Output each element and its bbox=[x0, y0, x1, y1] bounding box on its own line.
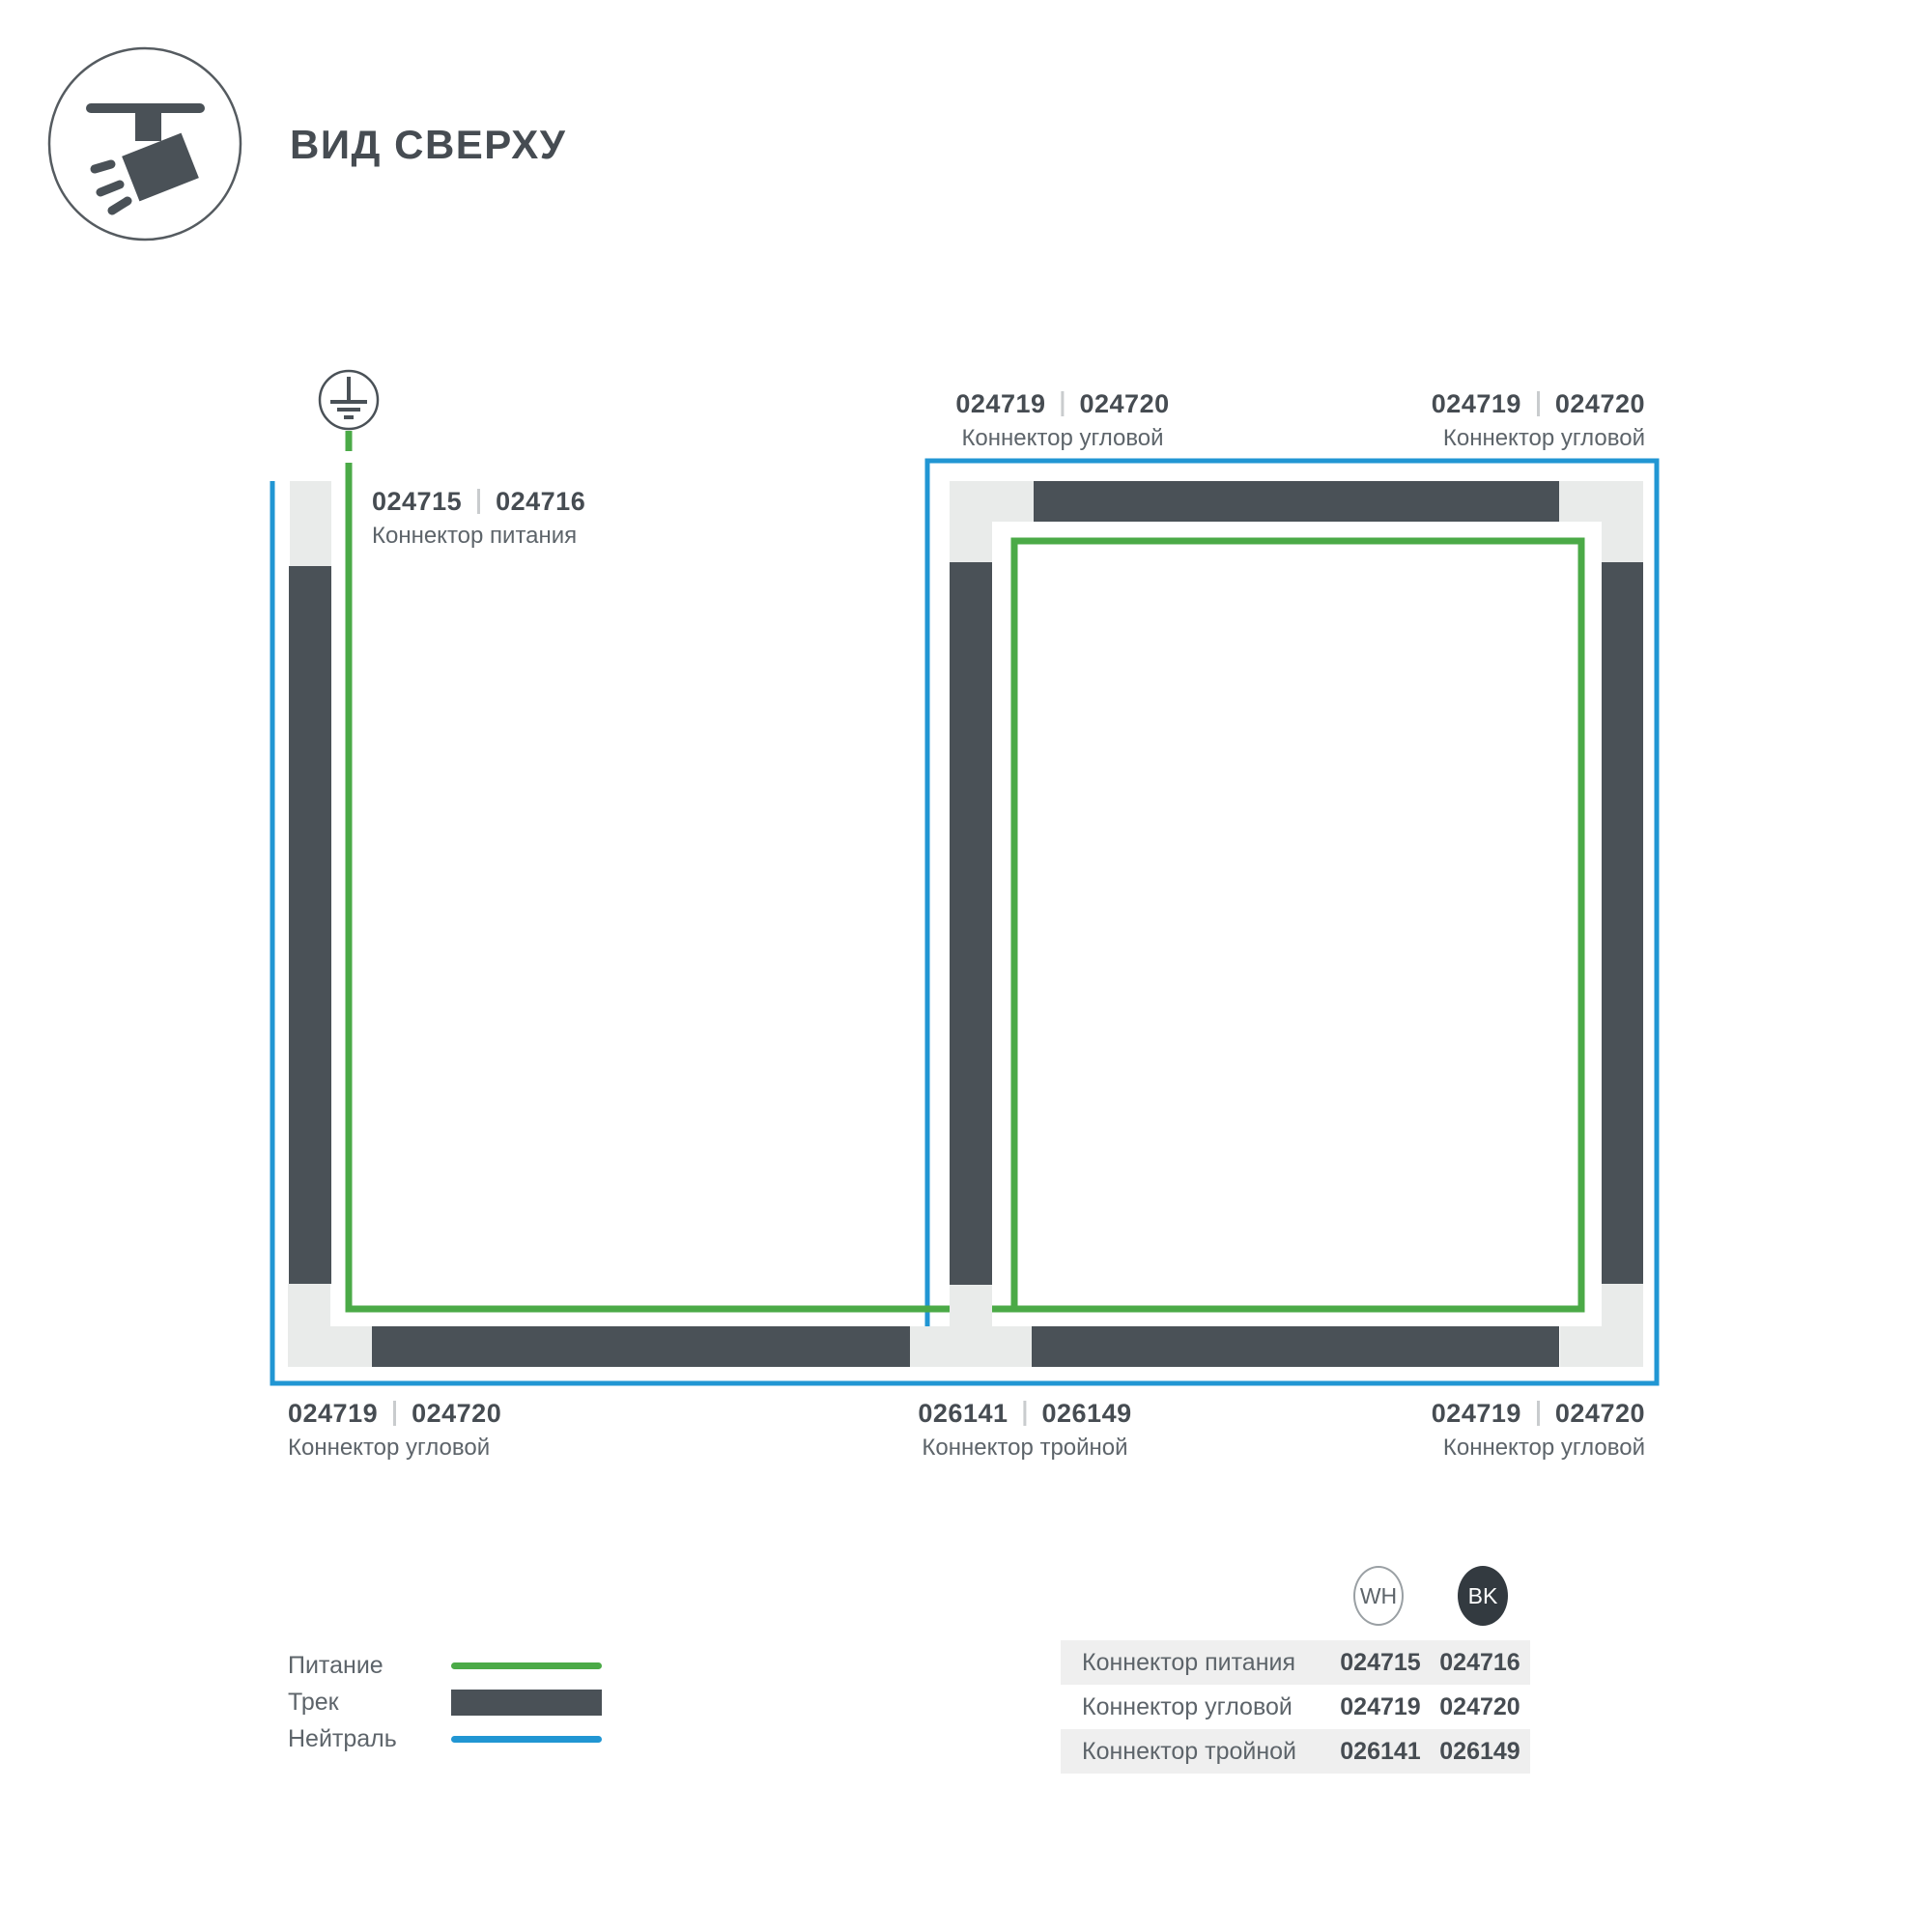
track-bottom-left bbox=[372, 1326, 910, 1367]
page: ВИД СВЕРХУ bbox=[0, 0, 1932, 1932]
legend-item-neutral: Нейтраль bbox=[288, 1720, 602, 1757]
neutral-line-swatch bbox=[451, 1736, 602, 1743]
row-code-bk: 024720 bbox=[1430, 1693, 1530, 1721]
legend-label: Трек bbox=[288, 1689, 451, 1717]
code-divider bbox=[477, 489, 480, 514]
power-connector bbox=[290, 481, 331, 566]
track-layout-diagram bbox=[0, 0, 1932, 1932]
ground-symbol bbox=[320, 371, 378, 429]
track-right-vertical bbox=[1602, 562, 1643, 1284]
legend-label: Питание bbox=[288, 1652, 451, 1680]
label-name: Коннектор угловой bbox=[955, 425, 1169, 452]
track-segments bbox=[289, 481, 1643, 1367]
corner-connector-top-mid bbox=[950, 481, 1034, 562]
label-name: Коннектор тройной bbox=[918, 1435, 1131, 1462]
corner-connector-bottom-left bbox=[288, 1284, 372, 1367]
code-divider bbox=[1537, 391, 1540, 416]
power-line-swatch bbox=[451, 1662, 602, 1669]
legend-label: Нейтраль bbox=[288, 1725, 451, 1753]
code-divider bbox=[1062, 391, 1065, 416]
row-name: Коннектор питания bbox=[1061, 1649, 1331, 1677]
label-name: Коннектор питания bbox=[372, 523, 585, 550]
table-row: Коннектор тройной 026141 026149 bbox=[1061, 1729, 1530, 1774]
product-table: WH BK Коннектор питания 024715 024716 Ко… bbox=[1061, 1565, 1530, 1774]
label-codes: 024719024720 bbox=[955, 388, 1169, 419]
row-code-wh: 026141 bbox=[1331, 1738, 1430, 1766]
row-code-wh: 024719 bbox=[1331, 1693, 1430, 1721]
label-codes: 024719024720 bbox=[1432, 1398, 1645, 1429]
corner-connector-top-right bbox=[1559, 481, 1643, 562]
label-codes: 024715024716 bbox=[372, 486, 585, 517]
table-header: WH BK bbox=[1061, 1565, 1530, 1640]
table-row: Коннектор угловой 024719 024720 bbox=[1061, 1685, 1530, 1729]
label-triple-connector: 026141026149 Коннектор тройной bbox=[918, 1398, 1131, 1462]
code-divider bbox=[393, 1401, 396, 1426]
label-codes: 024719024720 bbox=[288, 1398, 501, 1429]
label-power-connector: 024715024716 Коннектор питания bbox=[372, 486, 585, 550]
code-divider bbox=[1024, 1401, 1027, 1426]
track-middle-vertical bbox=[950, 562, 992, 1285]
track-bottom-right bbox=[1032, 1326, 1559, 1367]
row-name: Коннектор угловой bbox=[1061, 1693, 1331, 1721]
label-name: Коннектор угловой bbox=[288, 1435, 501, 1462]
legend: Питание Трек Нейтраль bbox=[288, 1647, 602, 1757]
table-row: Коннектор питания 024715 024716 bbox=[1061, 1640, 1530, 1685]
label-corner-bottom-left: 024719024720 Коннектор угловой bbox=[288, 1398, 501, 1462]
bk-color-badge: BK bbox=[1458, 1566, 1508, 1626]
label-codes: 024719024720 bbox=[1432, 388, 1645, 419]
legend-item-power: Питание bbox=[288, 1647, 602, 1684]
label-name: Коннектор угловой bbox=[1432, 1435, 1645, 1462]
wh-color-badge: WH bbox=[1353, 1566, 1404, 1626]
row-name: Коннектор тройной bbox=[1061, 1738, 1331, 1766]
label-corner-top-mid: 024719024720 Коннектор угловой bbox=[955, 388, 1169, 452]
label-name: Коннектор угловой bbox=[1432, 425, 1645, 452]
label-corner-bottom-right: 024719024720 Коннектор угловой bbox=[1432, 1398, 1645, 1462]
label-corner-top-right: 024719024720 Коннектор угловой bbox=[1432, 388, 1645, 452]
corner-connector-bottom-right bbox=[1560, 1284, 1643, 1367]
row-code-bk: 024716 bbox=[1430, 1649, 1530, 1677]
legend-item-track: Трек bbox=[288, 1684, 602, 1720]
row-code-bk: 026149 bbox=[1430, 1738, 1530, 1766]
label-codes: 026141026149 bbox=[918, 1398, 1131, 1429]
track-left-vertical bbox=[289, 566, 331, 1284]
track-swatch bbox=[451, 1690, 602, 1716]
track-top-horizontal bbox=[1034, 481, 1559, 522]
code-divider bbox=[1537, 1401, 1540, 1426]
row-code-wh: 024715 bbox=[1331, 1649, 1430, 1677]
